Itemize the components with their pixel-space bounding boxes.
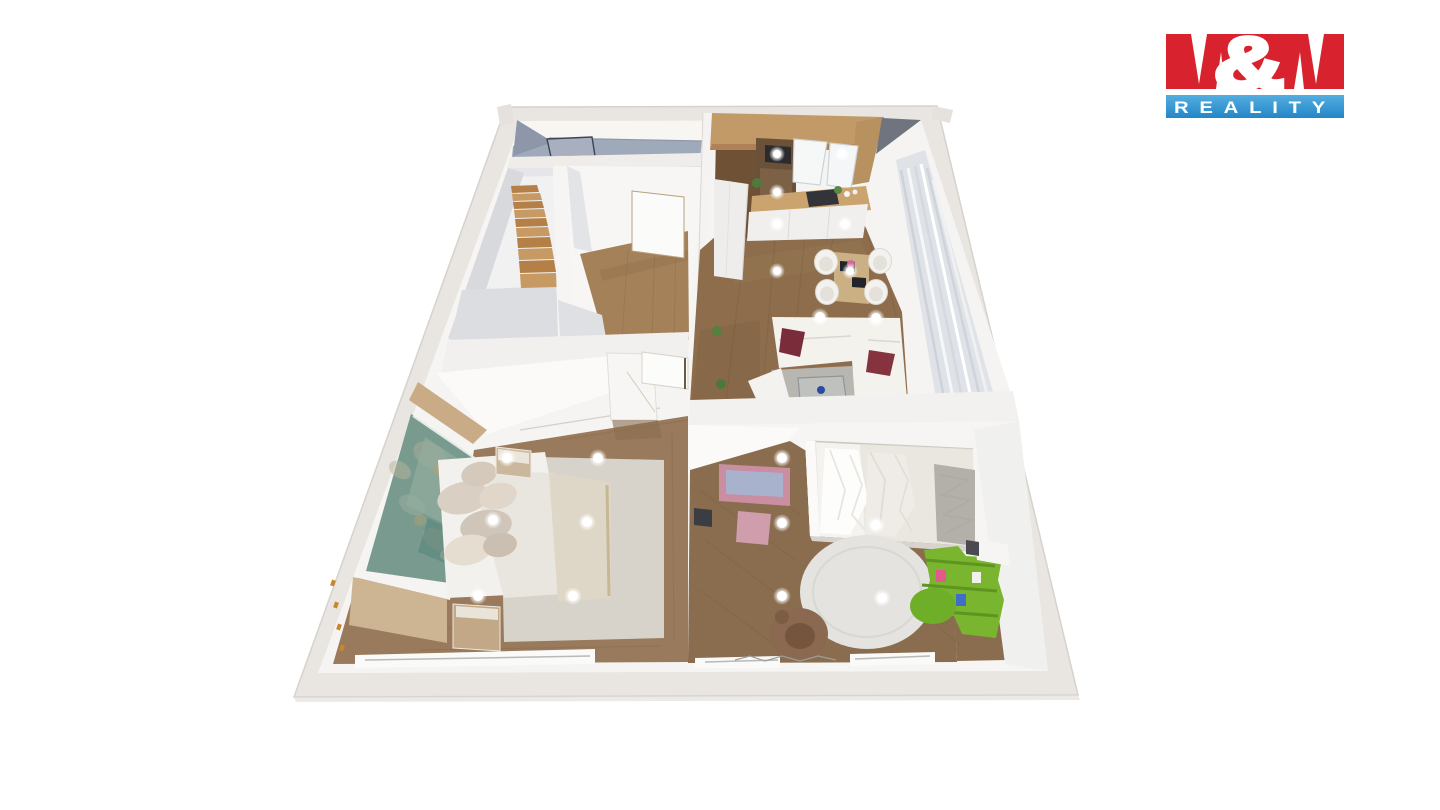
svg-text:&: & <box>1214 23 1285 105</box>
svg-text:REALITY: REALITY <box>1174 98 1336 117</box>
